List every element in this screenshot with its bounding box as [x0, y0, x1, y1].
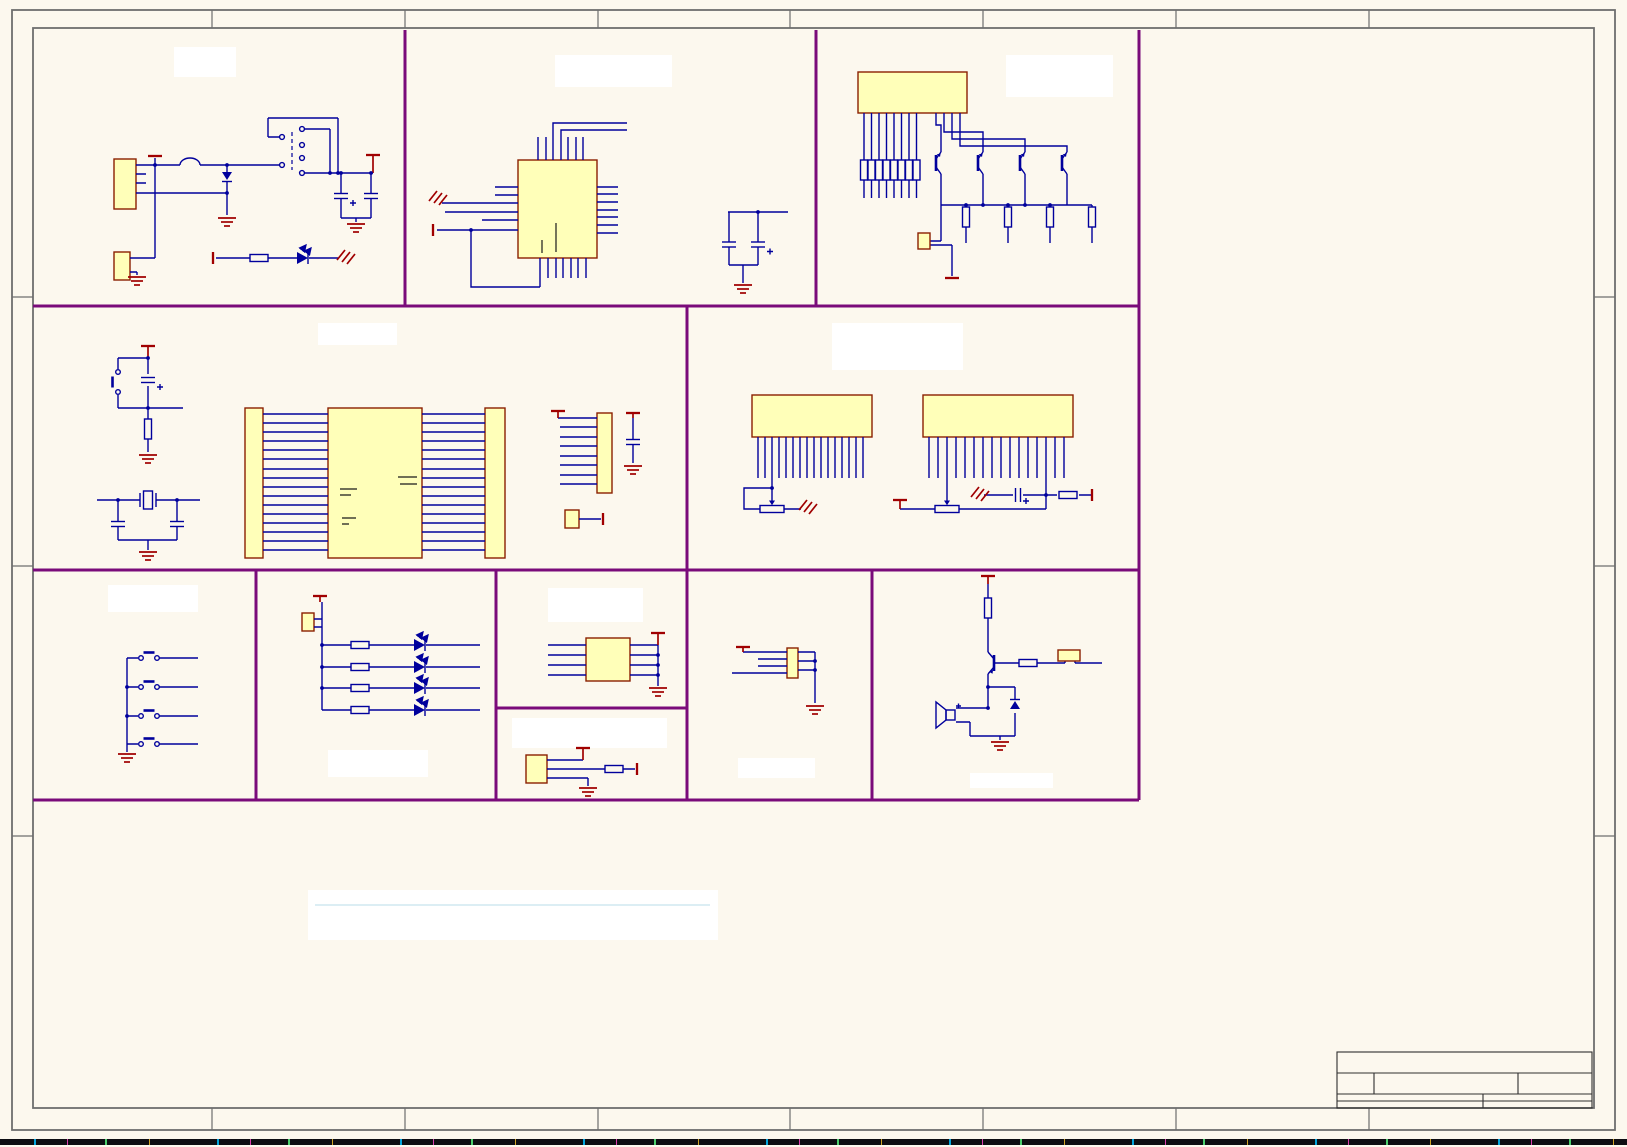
key-button: [139, 682, 160, 690]
pnp-transistor: [978, 152, 983, 174]
led: [414, 697, 428, 716]
jumper: [302, 613, 314, 631]
reset-button: [113, 370, 121, 395]
resistor: [145, 419, 152, 439]
crystal-circuit: [97, 491, 200, 560]
wires: [437, 123, 788, 287]
blank-label: [555, 55, 672, 87]
electrolytic-capacitor: [334, 194, 356, 207]
power-switch: [280, 127, 305, 176]
wires: [864, 113, 1092, 276]
header-left: [245, 408, 263, 558]
section-mcu-core: [97, 323, 642, 560]
schematic-sheet: [0, 0, 1627, 1147]
key-button: [139, 653, 160, 661]
title-block: [1337, 1052, 1592, 1108]
section-aux-connector: [732, 647, 824, 778]
lcd2-header: [923, 395, 1073, 437]
blank-label: [970, 773, 1053, 788]
capacitor: [722, 242, 736, 247]
section-sensor: [512, 718, 667, 796]
section-indicator-leds: [302, 596, 480, 777]
blank-notes-box: [308, 890, 718, 940]
protection-diode: [222, 172, 232, 182]
schematic-canvas: [0, 0, 1627, 1147]
sensor-component: [526, 755, 547, 783]
blank-label: [548, 588, 643, 622]
wires: [130, 118, 373, 275]
led: [414, 654, 428, 673]
ground: [579, 788, 597, 796]
ground: [118, 754, 136, 762]
capacitor: [170, 522, 184, 527]
electrolytic-capacitor: [751, 242, 773, 255]
blank-label: [318, 323, 397, 345]
single-pin-component: [565, 510, 603, 528]
power-led: [297, 245, 311, 264]
wires: [732, 652, 815, 703]
ground: [347, 224, 365, 232]
jumper: [1058, 650, 1080, 661]
contrast-pot: [935, 496, 959, 513]
resistor: [1059, 492, 1077, 499]
led: [414, 632, 428, 651]
lcd1-pins: [744, 437, 863, 509]
capacitor: [364, 194, 378, 199]
ground-slash: [971, 487, 989, 501]
electrolytic-capacitor: [141, 378, 163, 391]
crystal: [140, 491, 156, 509]
pnp-transistor: [1062, 152, 1067, 174]
ground: [218, 218, 236, 226]
blank-label: [174, 47, 236, 77]
header-right: [485, 408, 505, 558]
section-lcd-headers: [744, 323, 1092, 514]
resistor: [985, 598, 992, 618]
ground: [991, 742, 1009, 750]
display-connector: [858, 72, 967, 113]
section-controller-ic: [429, 55, 788, 293]
section-segment-driver: [858, 55, 1113, 278]
contrast-pot: [760, 496, 784, 513]
ground-connector: [114, 252, 130, 280]
aux-connector: [787, 648, 798, 678]
blank-label: [1006, 55, 1113, 97]
pnp-transistor: [988, 652, 994, 674]
blank-label: [738, 758, 815, 778]
key-button: [139, 711, 160, 719]
led-resistor: [250, 255, 268, 262]
fuse: [180, 158, 200, 165]
ground: [139, 552, 157, 560]
power-rail-symbol: [337, 250, 355, 264]
ground: [806, 706, 824, 714]
controller-ic: [518, 160, 597, 258]
ground: [734, 285, 752, 293]
wires: [314, 602, 480, 710]
capacitor: [626, 440, 640, 445]
electrolytic-capacitor: [1016, 488, 1030, 504]
isp-header: [551, 411, 642, 493]
led: [414, 675, 428, 694]
resistor: [605, 766, 623, 773]
ground-slash: [799, 500, 817, 514]
lcd1-header: [752, 395, 872, 437]
ground: [624, 466, 642, 474]
jumper: [918, 233, 930, 249]
pnp-transistor: [1020, 152, 1025, 174]
blank-label: [512, 718, 667, 748]
blank-label: [328, 750, 428, 777]
speaker: [936, 702, 961, 728]
wires: [956, 584, 1102, 740]
base-resistor: [1019, 660, 1037, 667]
section-buzzer-driver: [936, 576, 1102, 788]
ground: [649, 688, 667, 696]
pnp-transistor: [936, 152, 941, 174]
flyback-diode: [1010, 700, 1020, 710]
wires: [127, 658, 198, 752]
section-keypad: [108, 585, 198, 762]
interface-ic: [586, 638, 630, 681]
blank-label: [832, 323, 963, 370]
section-power-input: [114, 47, 380, 285]
notes-area: [308, 890, 718, 940]
capacitor: [111, 522, 125, 527]
mcu-ic: [328, 408, 422, 558]
reset-circuit: [113, 346, 184, 463]
power-connector: [114, 159, 136, 209]
ground: [139, 455, 157, 463]
compressed-text-strip: [0, 1139, 1627, 1145]
blank-label: [108, 585, 198, 612]
key-button: [139, 739, 160, 747]
section-interface-ic: [548, 588, 667, 696]
